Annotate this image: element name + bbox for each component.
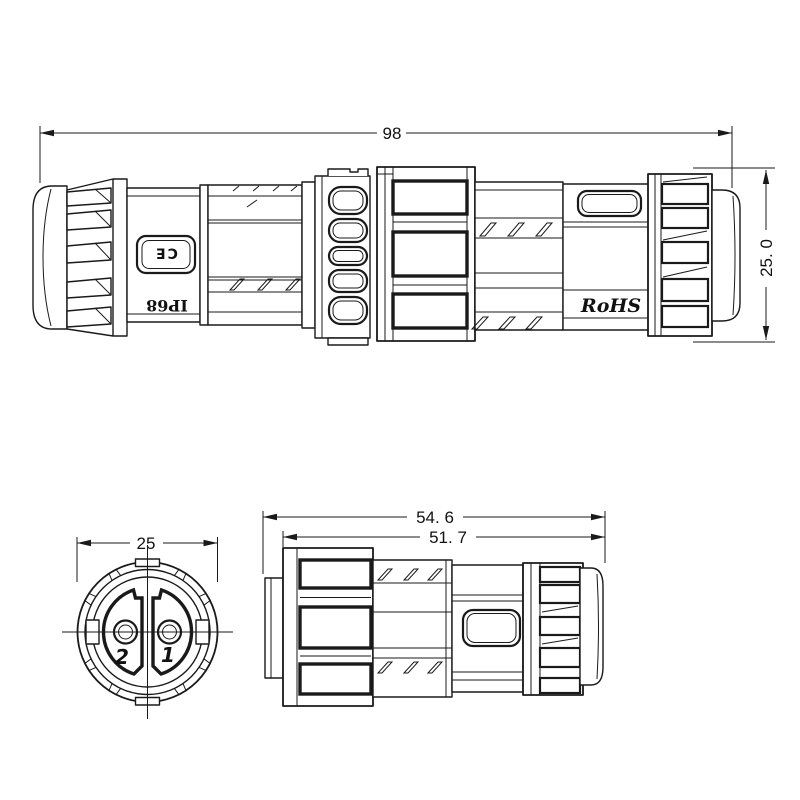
dim-25-0-label: 25. 0: [757, 239, 776, 277]
arrowhead: [283, 534, 297, 540]
top-view-assembled-connector: CE IP68: [33, 167, 740, 345]
mating-nose: [265, 578, 283, 678]
stadium-holes: [329, 187, 367, 324]
pin-2-label: 2: [115, 645, 129, 669]
side-body-slot: [463, 610, 520, 646]
rohs-marking-text: RoHS: [580, 295, 641, 317]
dim-54-6-label: 54. 6: [416, 508, 454, 527]
arrowhead: [718, 130, 732, 136]
ce-mark-text: CE: [154, 245, 178, 261]
arrowhead: [40, 130, 54, 136]
dim-plug-body-length: 51. 7: [283, 528, 605, 547]
grip-strip-top-tab: [328, 169, 368, 176]
side-view-plug: 54. 6 51. 7: [263, 508, 605, 706]
dim-98-label: 98: [383, 124, 402, 143]
coupling-ring-windows: [393, 181, 467, 328]
ip68-marking-text: IP68: [146, 296, 188, 315]
arrowhead: [591, 514, 605, 520]
front-view-connector-face: 25 2 1: [62, 534, 233, 719]
dim-25-label: 25: [137, 534, 156, 553]
technical-drawing-page: 98 25. 0 CE IP68: [0, 0, 800, 800]
arrowhead: [77, 540, 91, 546]
right-body-ring: [475, 182, 563, 330]
arrowhead: [591, 534, 605, 540]
right-end-cap: [712, 190, 740, 321]
arrowhead: [263, 514, 277, 520]
left-end-cap: [33, 186, 67, 329]
arrowhead: [763, 326, 769, 340]
dim-51-7-label: 51. 7: [429, 528, 467, 547]
collar-divider-ring: [200, 185, 208, 325]
pin-1-label: 1: [161, 643, 175, 667]
connector-drawing-svg: 98 25. 0 CE IP68: [0, 0, 800, 800]
side-knurl-section: [373, 560, 452, 697]
grip-strip-bottom-tab: [328, 338, 368, 345]
transition-band: [302, 182, 315, 328]
arrowhead: [763, 170, 769, 184]
left-body-ring: [208, 185, 302, 325]
arrowhead: [204, 540, 218, 546]
side-coupling-windows: [300, 560, 371, 694]
side-rear-cap: [580, 568, 603, 685]
